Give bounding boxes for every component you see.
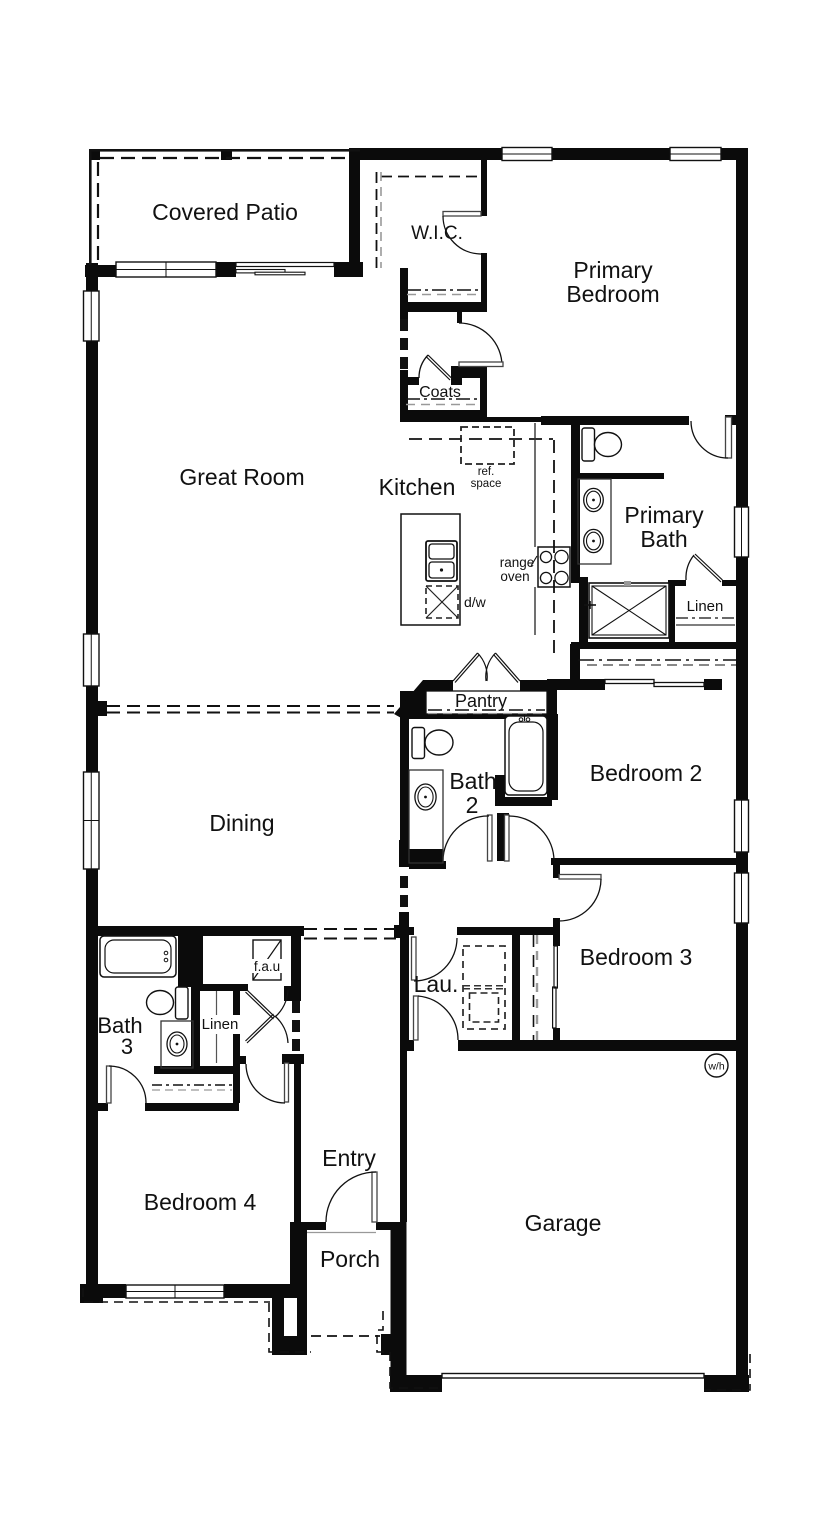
- svg-text:Great Room: Great Room: [179, 464, 304, 490]
- svg-text:space: space: [471, 478, 502, 490]
- svg-text:Primary: Primary: [573, 257, 653, 283]
- svg-text:Entry: Entry: [322, 1145, 376, 1171]
- svg-text:W.I.C.: W.I.C.: [411, 223, 463, 244]
- svg-text:d/w: d/w: [464, 594, 487, 610]
- svg-text:Dining: Dining: [209, 810, 274, 836]
- svg-text:ref.: ref.: [478, 466, 495, 478]
- svg-text:Primary: Primary: [624, 502, 704, 528]
- svg-text:Linen: Linen: [202, 1016, 239, 1033]
- svg-text:oven: oven: [500, 569, 529, 584]
- svg-text:Bath: Bath: [640, 526, 687, 552]
- svg-text:Bedroom: Bedroom: [566, 281, 659, 307]
- svg-text:Coats: Coats: [419, 384, 461, 401]
- svg-text:Lau.: Lau.: [414, 971, 459, 997]
- svg-text:f.a.u: f.a.u: [254, 959, 280, 974]
- svg-text:Covered Patio: Covered Patio: [152, 199, 298, 225]
- svg-text:w/h: w/h: [707, 1061, 725, 1073]
- svg-text:Garage: Garage: [525, 1210, 602, 1236]
- svg-text:2: 2: [466, 792, 479, 818]
- svg-text:Bedroom 4: Bedroom 4: [144, 1189, 257, 1215]
- svg-text:Bedroom 3: Bedroom 3: [580, 944, 693, 970]
- svg-text:Bedroom 2: Bedroom 2: [590, 760, 703, 786]
- svg-text:range: range: [500, 555, 535, 570]
- svg-text:Bath: Bath: [449, 768, 496, 794]
- svg-text:3: 3: [121, 1034, 133, 1059]
- svg-text:Linen: Linen: [687, 598, 724, 615]
- svg-text:Pantry: Pantry: [455, 691, 507, 711]
- svg-text:Porch: Porch: [320, 1246, 380, 1272]
- svg-text:Kitchen: Kitchen: [379, 474, 456, 500]
